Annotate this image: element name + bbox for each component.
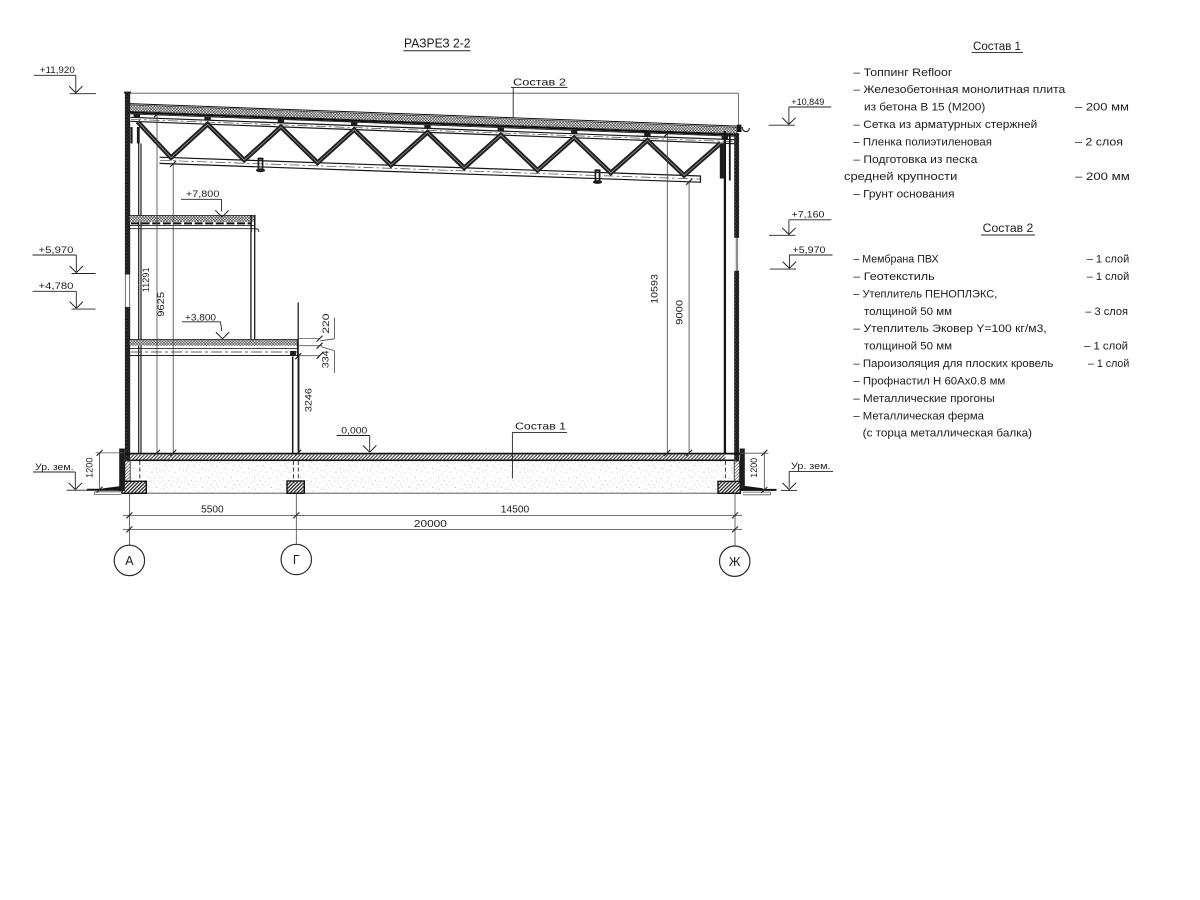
svg-text:+4,780: +4,780 — [39, 281, 74, 292]
svg-text:– Железобетонная монолитная п: – Железобетонная монолитная плита — [853, 84, 1066, 96]
svg-text:Ж: Ж — [729, 555, 741, 569]
svg-text:– Геотекстиль: – Геотекстиль — [853, 271, 935, 283]
svg-text:– 3 слоя: – 3 слоя — [1085, 306, 1128, 318]
svg-text:– 1 слой: – 1 слой — [1087, 254, 1130, 266]
svg-text:– 1 слой: – 1 слой — [1084, 341, 1128, 353]
svg-text:334: 334 — [321, 350, 332, 368]
svg-text:Г: Г — [293, 553, 300, 567]
svg-text:– Сетка из арматурных стержней: – Сетка из арматурных стержней — [853, 119, 1037, 131]
svg-text:5500: 5500 — [201, 504, 224, 515]
svg-text:– Пароизоляция для плоских кро: – Пароизоляция для плоских кровель — [853, 358, 1053, 370]
svg-text:– Металлическая ферма: – Металлическая ферма — [853, 410, 985, 422]
svg-text:– 1 слой: – 1 слой — [1087, 271, 1130, 283]
svg-text:0,000: 0,000 — [341, 426, 367, 437]
svg-text:Ур. зем.: Ур. зем. — [791, 461, 831, 471]
svg-text:Состав 2: Состав 2 — [983, 223, 1034, 235]
svg-text:+5,970: +5,970 — [39, 245, 74, 256]
svg-text:Ур. зем.: Ур. зем. — [35, 462, 74, 472]
svg-text:– Пленка полиэтиленовая: – Пленка полиэтиленовая — [853, 136, 992, 148]
svg-text:14500: 14500 — [501, 503, 530, 515]
svg-text:– Утеплитель Эковер Y=100 кг/м: – Утеплитель Эковер Y=100 кг/м3, — [853, 323, 1046, 335]
svg-text:+10,849: +10,849 — [791, 97, 824, 108]
svg-text:РАЗРЕЗ 2-2: РАЗРЕЗ 2-2 — [404, 36, 471, 51]
svg-text:– 200 мм: – 200 мм — [1075, 102, 1129, 114]
svg-text:– Топпинг Refloor: – Топпинг Refloor — [853, 67, 952, 79]
svg-text:+5,970: +5,970 — [793, 245, 826, 256]
svg-text:+11,920: +11,920 — [40, 65, 75, 76]
svg-text:Состав 1: Состав 1 — [515, 421, 566, 433]
svg-text:20000: 20000 — [414, 518, 447, 530]
svg-text:А: А — [125, 554, 134, 568]
svg-text:– Металлические прогоны: – Металлические прогоны — [853, 393, 994, 405]
svg-text:3246: 3246 — [304, 388, 315, 412]
svg-text:(с торца металлическая балка): (с торца металлическая балка) — [863, 428, 1032, 440]
svg-text:10593: 10593 — [649, 274, 660, 304]
svg-text:1200: 1200 — [85, 458, 96, 479]
svg-text:Состав 2: Состав 2 — [513, 76, 566, 88]
svg-text:средней крупности: средней крупности — [844, 171, 957, 183]
svg-text:– 2 слоя: – 2 слоя — [1075, 136, 1123, 148]
svg-text:– Грунт основания: – Грунт основания — [853, 189, 954, 201]
svg-text:толщиной 50 мм: толщиной 50 мм — [864, 306, 952, 318]
svg-text:– 200 мм: – 200 мм — [1075, 171, 1130, 183]
svg-text:– Подготовка из песка: – Подготовка из песка — [853, 154, 978, 166]
svg-text:Состав 1: Состав 1 — [973, 41, 1021, 53]
svg-text:+7,160: +7,160 — [792, 210, 825, 221]
svg-text:из бетона В 15 (М200): из бетона В 15 (М200) — [864, 102, 985, 114]
svg-text:– 1 слой: – 1 слой — [1088, 358, 1129, 370]
svg-text:1200: 1200 — [749, 458, 760, 478]
svg-text:220: 220 — [321, 314, 332, 334]
svg-text:толщиной 50 мм: толщиной 50 мм — [864, 341, 952, 353]
svg-text:9000: 9000 — [675, 300, 686, 325]
svg-text:+7,800: +7,800 — [186, 189, 220, 200]
svg-text:11291: 11291 — [141, 267, 152, 292]
svg-text:– Утеплитель ПЕНОПЛЭКС,: – Утеплитель ПЕНОПЛЭКС, — [853, 288, 997, 300]
svg-text:– Профнастил Н 60Ах0.8 мм: – Профнастил Н 60Ах0.8 мм — [853, 375, 1005, 387]
svg-text:– Мембрана ПВХ: – Мембрана ПВХ — [853, 254, 939, 266]
svg-text:9625: 9625 — [156, 292, 167, 317]
